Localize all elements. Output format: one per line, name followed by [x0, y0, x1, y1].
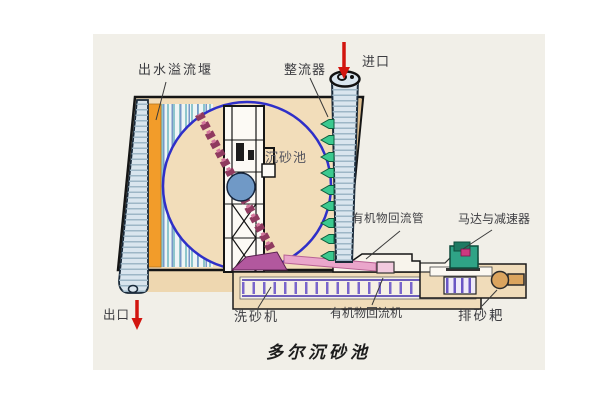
drive-wheel — [227, 173, 255, 201]
label-flow-rectifier: 整流器 — [284, 63, 326, 77]
motor-reducer-shape — [450, 242, 478, 268]
label-organic-return-machine: 有机物回流机 — [330, 307, 402, 320]
diagram-graphics — [0, 0, 600, 400]
label-organic-return-pipe: 有机物回流管 — [352, 213, 424, 226]
label-sand-washer: 洗砂机 — [234, 310, 279, 324]
label-grit-chamber: 沉砂池 — [265, 151, 307, 165]
label-motor-and-reducer: 马达与减速器 — [458, 213, 530, 226]
label-grit-rake: 排砂耙 — [458, 309, 505, 324]
label-outlet-weir: 出水溢流堰 — [138, 63, 213, 77]
diagram-title: 多尔沉砂池 — [266, 344, 371, 363]
dorr-grit-chamber-diagram: 出水溢流堰 整流器 进口 沉砂池 有机物回流管 马达与减速器 出口 洗砂机 有机… — [0, 0, 600, 400]
label-inlet: 进口 — [362, 55, 390, 69]
overflow-weir-wall — [148, 104, 161, 267]
flow-straightener-arrows — [321, 120, 334, 261]
label-outlet: 出口 — [103, 309, 130, 323]
